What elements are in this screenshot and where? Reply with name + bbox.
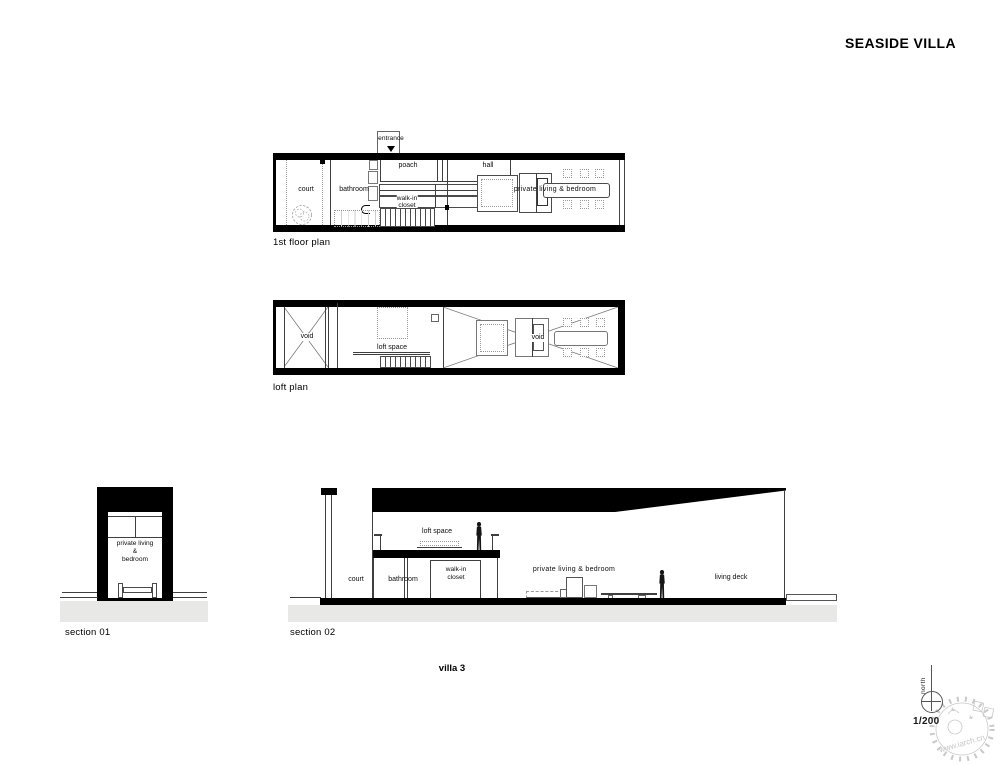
wall-living-left	[447, 160, 448, 225]
north-arrow-cross	[921, 701, 941, 702]
door-marker	[445, 205, 449, 210]
ground-fill	[288, 605, 837, 622]
scale-label: 1/200	[913, 716, 940, 727]
tree-icon	[291, 204, 313, 226]
loft-space-label: loft space	[377, 344, 407, 352]
wall-right	[162, 487, 173, 601]
entrance-arrow-icon	[387, 146, 395, 152]
loft-caption: loft plan	[273, 382, 308, 393]
chair	[563, 318, 572, 327]
person-silhouette	[657, 570, 667, 598]
first-floor-plan: entrance court bathroom poach hall	[273, 128, 625, 258]
loft-space-label: loft space	[422, 528, 452, 536]
ground-line	[173, 592, 207, 593]
deck-platform	[786, 594, 837, 601]
drawing-title: villa 3	[439, 663, 465, 674]
door-marker	[320, 160, 325, 164]
stair-landing	[334, 210, 380, 227]
railing-post	[380, 535, 381, 550]
railing	[353, 354, 430, 355]
hall-label: hall	[483, 162, 494, 170]
void-left-label: void	[300, 333, 315, 341]
person-silhouette	[474, 522, 484, 550]
watermark-url: www.iarch.cn	[937, 733, 986, 755]
chair	[596, 348, 605, 357]
north-arrow-line	[931, 665, 932, 711]
bathroom-label: bathroom	[388, 576, 418, 584]
wall-right	[618, 300, 625, 375]
wardrobe-divider	[435, 196, 436, 208]
void-edge	[325, 307, 326, 368]
wall-right	[784, 490, 785, 598]
chair	[580, 200, 589, 209]
wall-poach-left	[380, 160, 381, 181]
drawing-sheet: SEASIDE VILLA entrance court bathroom po…	[0, 0, 1000, 765]
wall-poach-hall	[437, 160, 438, 181]
walkin-closet-label: walk-in closet	[446, 566, 467, 582]
wall-bottom	[273, 368, 625, 375]
roof-wedge	[372, 488, 786, 513]
wall-left	[273, 300, 276, 375]
void-edge	[284, 307, 285, 368]
living-label: private living & bedroom	[533, 566, 615, 574]
table-below	[554, 331, 608, 346]
cabinet	[566, 577, 583, 598]
loft-line	[108, 537, 162, 538]
ground-line	[62, 592, 97, 593]
ground-line	[173, 597, 207, 598]
bath-fixture	[368, 171, 378, 184]
bed-slab	[123, 587, 152, 593]
wall-top	[273, 153, 625, 160]
bed-mattress-below	[480, 324, 504, 352]
loft-plan: void loft space void loft plan	[273, 298, 625, 403]
bed-dashed	[526, 591, 563, 598]
wall-left	[273, 153, 276, 232]
chair	[595, 200, 604, 209]
skylight	[431, 314, 439, 322]
wall-right-glazing	[619, 160, 625, 225]
loft-floor-slab	[373, 550, 500, 558]
court-edge-dotted	[286, 160, 287, 225]
loft-line	[135, 516, 136, 537]
chair	[596, 318, 605, 327]
bath-fixture	[368, 186, 378, 201]
ground-fill	[60, 601, 208, 622]
stairs	[380, 208, 435, 227]
living-deck-label: living deck	[715, 574, 748, 582]
ground-line	[60, 597, 98, 598]
wall-interior	[373, 558, 374, 598]
railing-post	[492, 535, 493, 550]
ground-line	[290, 597, 321, 598]
poach-label: poach	[398, 162, 417, 170]
bed-mattress	[481, 179, 513, 207]
loft-mattress	[420, 541, 459, 546]
wall-left	[97, 487, 108, 601]
first-floor-caption: 1st floor plan	[273, 237, 330, 248]
bed-post	[152, 583, 157, 598]
court-wall-cap	[321, 488, 337, 495]
wall-bottom	[273, 225, 625, 232]
court-wall	[325, 495, 326, 598]
bath-fixture	[369, 160, 378, 170]
loft-bed	[377, 307, 408, 339]
cabinet-low	[584, 585, 597, 598]
living-label: private living & bedroom	[117, 540, 154, 564]
wall-court-bathroom	[330, 160, 331, 225]
bathroom-label: bathroom	[339, 186, 369, 194]
section01-caption: section 01	[65, 627, 110, 638]
wall-interior	[337, 303, 338, 368]
wardrobe-divider	[435, 184, 436, 196]
ground-slab	[320, 598, 786, 605]
chair	[563, 169, 572, 178]
stairs	[380, 356, 431, 368]
void-right-label: void	[531, 334, 546, 342]
chair	[580, 318, 589, 327]
chair	[563, 348, 572, 357]
sheet-title: SEASIDE VILLA	[845, 35, 956, 51]
chair	[595, 169, 604, 178]
void-edge	[328, 307, 329, 368]
railing	[353, 352, 430, 353]
court-label: court	[298, 186, 314, 194]
section02-caption: section 02	[290, 627, 335, 638]
chair	[580, 169, 589, 178]
court-label: court	[348, 576, 364, 584]
loft-mattress-base	[417, 547, 462, 548]
section-02: loft space court bathroom walk-in closet…	[288, 485, 838, 645]
north-label: north	[920, 666, 927, 694]
court-edge-dotted	[322, 160, 323, 225]
chair	[563, 200, 572, 209]
north-arrow-icon	[921, 691, 943, 713]
section-01: private living & bedroom section 01	[60, 485, 210, 645]
court-wall	[331, 495, 332, 598]
chair	[580, 348, 589, 357]
wall-poach-hall	[442, 160, 443, 181]
living-label: private living & bedroom	[514, 186, 596, 194]
wall-interior	[497, 558, 498, 598]
entrance-label: entrance	[378, 135, 404, 143]
